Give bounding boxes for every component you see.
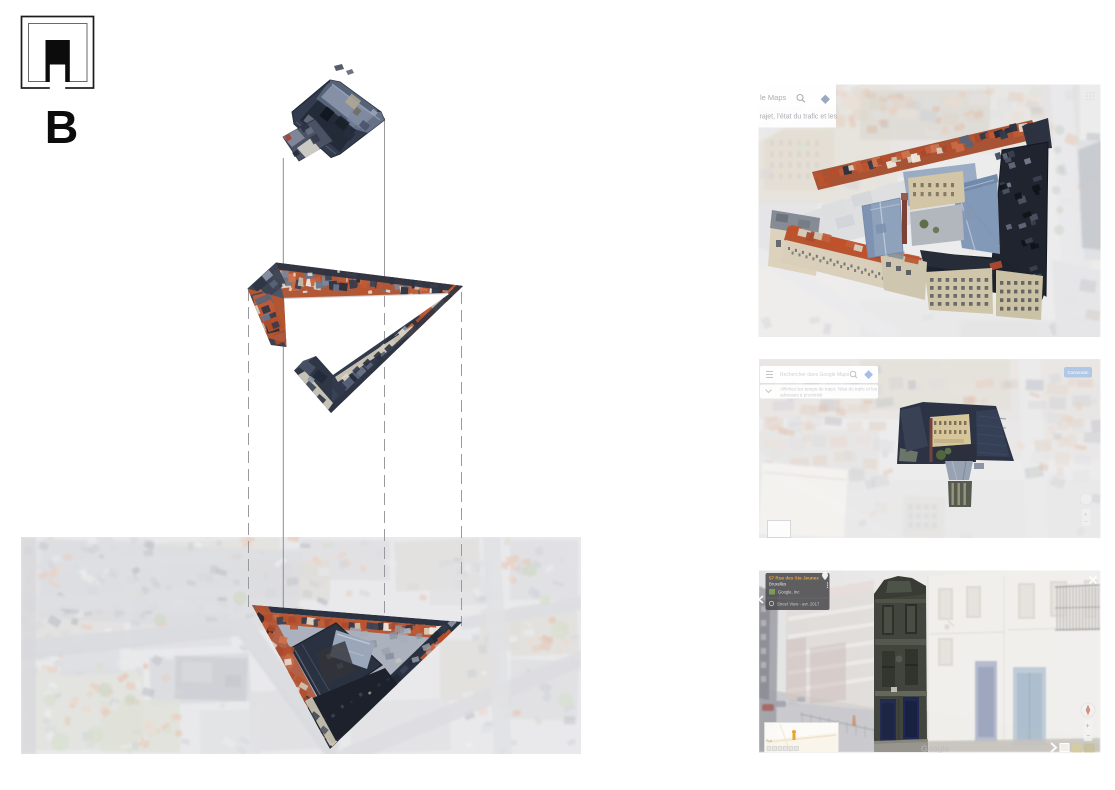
svg-text:Google: Google: [921, 744, 950, 754]
svg-text:Rue: Rue: [766, 739, 772, 743]
svg-text:−: −: [1086, 733, 1090, 740]
svg-text:B: B: [45, 101, 79, 153]
svg-text:Rechercher dans Google Maps: Rechercher dans Google Maps: [780, 372, 850, 378]
svg-text:Bruxelles: Bruxelles: [769, 582, 786, 587]
svg-text:le Maps: le Maps: [760, 93, 787, 102]
svg-text:+: +: [1084, 512, 1087, 518]
svg-text:57 Rue des Ste Jeunes: 57 Rue des Ste Jeunes: [769, 576, 819, 581]
svg-text:rajet, l'état du trafic et les: rajet, l'état du trafic et les: [760, 114, 838, 121]
svg-text:−: −: [1085, 520, 1088, 526]
svg-text:Connexion: Connexion: [1068, 370, 1090, 375]
svg-text:Affichez les temps de trajet,: Affichez les temps de trajet, l'état du …: [780, 387, 878, 392]
svg-text:adresses à proximité: adresses à proximité: [780, 393, 823, 398]
svg-text:+: +: [1086, 723, 1090, 730]
svg-text:Google, Inc: Google, Inc: [778, 590, 799, 595]
svg-text:Street View - avr. 2017: Street View - avr. 2017: [777, 602, 820, 607]
